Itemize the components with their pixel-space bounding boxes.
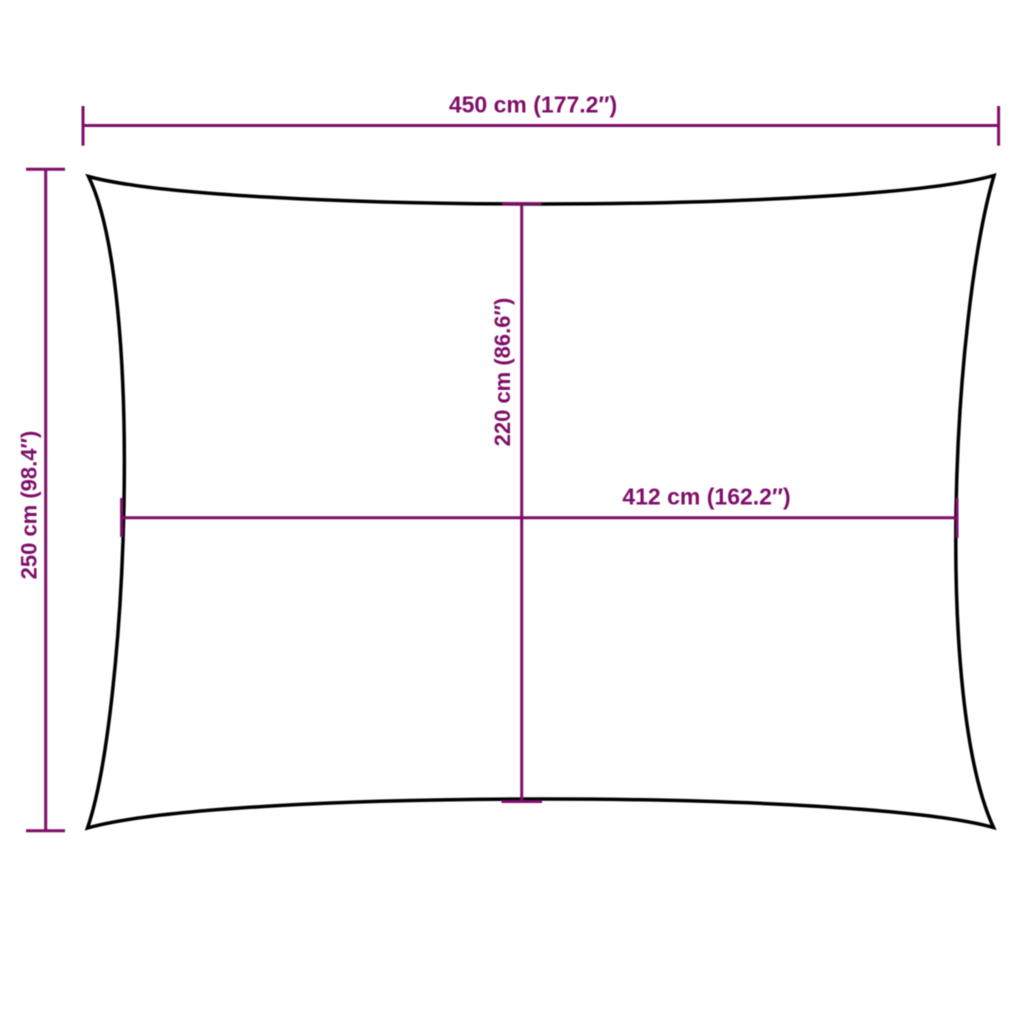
svg-text:250 cm (98.4″): 250 cm (98.4″) — [17, 431, 42, 580]
svg-text:220 cm (86.6″): 220 cm (86.6″) — [490, 298, 515, 447]
svg-text:412 cm (162.2″): 412 cm (162.2″) — [622, 484, 790, 510]
svg-text:450 cm (177.2″): 450 cm (177.2″) — [449, 92, 617, 118]
